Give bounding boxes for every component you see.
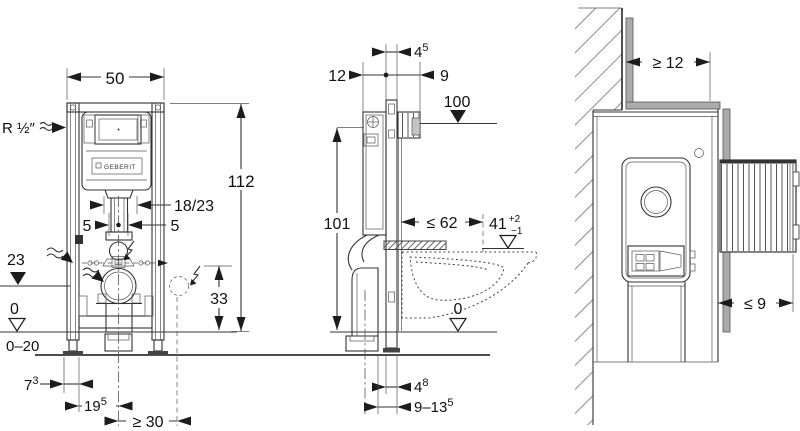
level-0-label: 0: [10, 301, 19, 318]
level-marker-0: 0: [9, 301, 25, 331]
fastening-arrow-icon: [158, 260, 168, 266]
dim-min12-label: ≥ 12: [652, 55, 683, 72]
frame-structure: [63, 103, 168, 356]
level-triangle-filled-icon: [450, 110, 466, 123]
wc-pan-outline: [402, 252, 537, 320]
dim-9135-label: 9–135: [414, 397, 454, 416]
dim-45-label: 45: [414, 42, 428, 61]
protection-box-side: [398, 112, 420, 138]
electrical-symbols: [124, 241, 200, 426]
dim-offset-right: 5: [171, 218, 180, 235]
finished-wall-horizontal: [626, 102, 720, 109]
logo-square-icon: [96, 163, 101, 168]
level-triangle-filled-icon: [10, 272, 26, 285]
floor-adjust-label: 0–20: [6, 338, 39, 355]
wall-hatch: [575, 8, 622, 425]
dim-max62-label: ≤ 62: [426, 215, 457, 232]
wave-icon: [40, 123, 52, 126]
socket-dashed-circle: [170, 277, 189, 296]
level-marker-100: 100: [420, 94, 497, 124]
foot-plate-left: [63, 351, 83, 356]
dim-frame-width: 50: [67, 65, 164, 100]
dim-connection-height: 33: [204, 266, 233, 330]
dim-offset-left: 5: [83, 218, 92, 235]
foot-plate-right: [148, 351, 168, 356]
supply-size-label: R ½″: [2, 120, 36, 137]
water-supply-label: R ½″: [2, 120, 66, 137]
level-41-tolerance: −1: [511, 226, 523, 237]
dim-9-label: 9: [440, 68, 449, 85]
frame-plan: [593, 109, 718, 362]
side-view: 45 12 9 100 101: [319, 42, 537, 416]
plan-view: ≥ 12: [575, 8, 799, 425]
technical-drawing-page: GEBERIT: [0, 0, 800, 431]
dim-center-offsets: 5 5: [83, 213, 180, 236]
dim-max9-label: ≤ 9: [744, 296, 766, 313]
dim-corner-distance: ≥ 12: [626, 50, 710, 101]
cistern-side: [363, 112, 386, 235]
dim-12-label: 12: [328, 68, 346, 85]
dim-min30-label: ≥ 30: [132, 414, 163, 431]
level-marker-0-side: 0: [450, 301, 466, 331]
cistern-front: GEBERIT: [82, 112, 151, 190]
fixing-rod: [384, 241, 446, 250]
dim-48-label: 48: [414, 377, 428, 396]
wave-icon: [47, 248, 63, 252]
brand-logo: GEBERIT: [104, 164, 136, 171]
level-marker-23: 23: [7, 252, 26, 285]
rail-clamp: [75, 235, 83, 244]
installation-frame-drawing: GEBERIT: [0, 0, 800, 431]
dim-33-label: 33: [210, 291, 228, 308]
level-23-label: 23: [7, 252, 25, 269]
cistern-plan: [622, 158, 695, 362]
level-triangle-open-icon: [500, 236, 516, 249]
level-triangle-open-icon: [9, 319, 25, 332]
level-100-label: 100: [444, 94, 471, 111]
wave-icon: [83, 268, 99, 272]
supply-arrow-icon: [52, 122, 66, 133]
level-marker-41: 41+2 −1: [482, 214, 524, 249]
level-0-label: 0: [454, 301, 463, 318]
protection-box-plan: [720, 160, 799, 252]
dim-101-label: 101: [324, 216, 351, 233]
level-triangle-open-icon: [450, 319, 466, 332]
dim-73-label: 73: [24, 375, 38, 394]
dim-bend-label: 18/23: [174, 198, 214, 215]
fill-valve: [641, 187, 671, 217]
dim-width-label: 50: [106, 69, 125, 88]
flush-and-outlet: [96, 190, 142, 351]
flush-pipe-and-drain: [346, 235, 379, 351]
dim-outlet-distance: 195: [65, 396, 133, 415]
lightning-icon: [192, 266, 200, 282]
dim-socket-distance: ≥ 30: [105, 411, 192, 431]
dim-height-label: 112: [227, 172, 254, 191]
